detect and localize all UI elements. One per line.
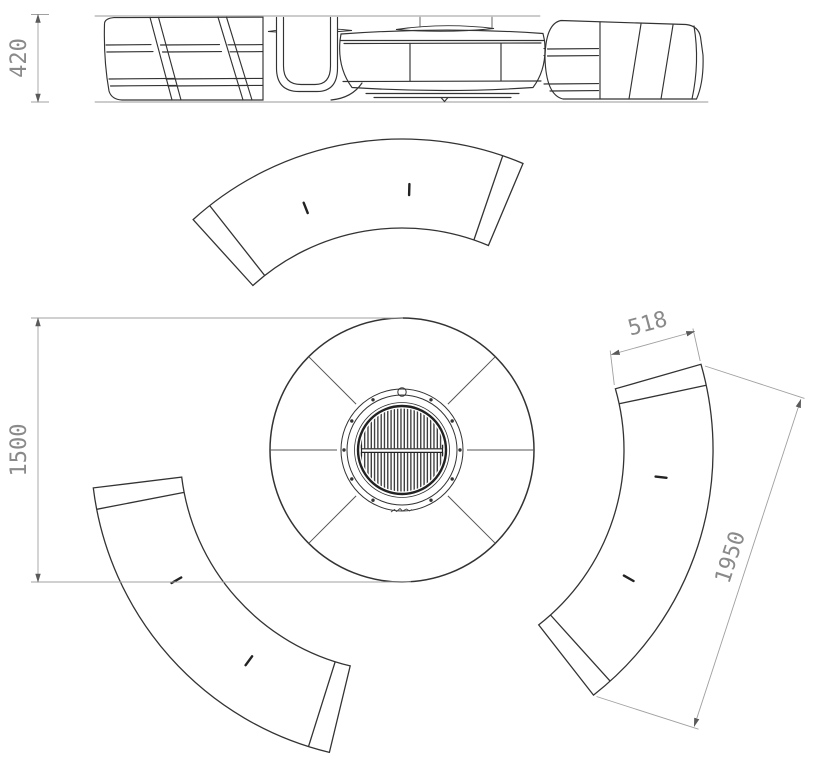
dimension-label-518: 518 xyxy=(625,307,670,341)
dimension-420 xyxy=(31,15,49,103)
fire-table-side xyxy=(340,17,563,101)
fire-grill xyxy=(355,403,450,498)
dimension-label-1500: 1500 xyxy=(7,424,32,477)
technical-drawing-page: 420 1500 518 1950 xyxy=(0,0,824,768)
right-bench-side xyxy=(545,21,703,100)
dimension-label-420: 420 xyxy=(7,38,32,78)
elevation-view xyxy=(95,16,708,102)
plan-view xyxy=(93,139,713,752)
dimension-label-1950: 1950 xyxy=(711,528,751,586)
bench-bottom-left-plan xyxy=(93,477,350,752)
technical-drawing-canvas: 420 1500 518 1950 xyxy=(0,0,824,768)
fire-table-plan xyxy=(270,318,534,582)
bench-top-plan xyxy=(193,139,523,286)
bench-leg-support xyxy=(277,17,338,91)
table-bottom-notch xyxy=(441,98,448,102)
dimension-1500 xyxy=(31,318,411,582)
bench-right-plan xyxy=(539,364,713,695)
